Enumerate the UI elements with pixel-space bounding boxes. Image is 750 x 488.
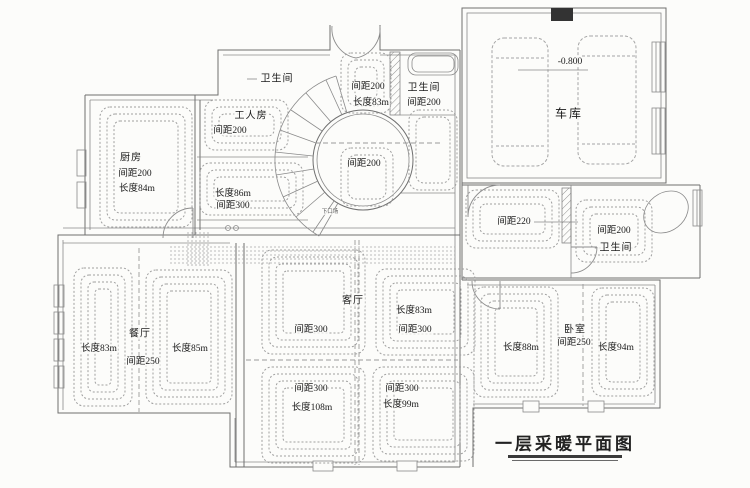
- label-bedroom-spacing: 间距250: [556, 338, 591, 348]
- label-living-br-spacing: 间距300: [384, 384, 419, 394]
- label-bedroom-name: 卧室: [563, 325, 587, 336]
- label-living-br-length: 长度99m: [382, 400, 420, 410]
- floor-plan-page: 厨房 间距200 长度84m 卫生间 工人房 间距200 长度86m 间距300…: [0, 0, 750, 488]
- label-hallway-spacing: 间距300: [215, 201, 250, 211]
- label-stair-note: 下口场: [321, 209, 340, 215]
- label-worker-name: 工人房: [234, 111, 269, 122]
- column-block: [551, 8, 573, 21]
- car-outline: [578, 36, 636, 164]
- cars: [492, 36, 636, 166]
- label-small-bath: 卫生间: [260, 74, 295, 85]
- label-topbath-name: 卫生间: [407, 83, 442, 94]
- label-worker-spacing: 间距200: [212, 126, 247, 136]
- label-bedroom-left-length: 长度88m: [502, 343, 540, 353]
- fixtures: [226, 53, 697, 242]
- label-topbath-spacing: 间距200: [406, 98, 441, 108]
- label-dining-name: 餐厅: [128, 329, 152, 340]
- label-vestibule-length: 长度83m: [352, 98, 390, 108]
- label-kitchen-name: 厨房: [119, 153, 143, 164]
- car-outline: [492, 38, 548, 166]
- title-underline-thick: [508, 455, 622, 458]
- label-hall-spacing: 间距200: [346, 159, 381, 169]
- drawing-title: 一层采暖平面图: [495, 430, 635, 455]
- label-dining-spacing: 间距250: [125, 357, 160, 367]
- label-dining-right-length: 长度85m: [171, 344, 209, 354]
- label-rightbath-spacing: 间距200: [596, 226, 631, 236]
- label-kitchen-length: 长度84m: [118, 184, 156, 194]
- label-garage-elevation: -0.800: [557, 57, 584, 67]
- kitchen-door: [163, 208, 193, 238]
- label-kitchen-spacing: 间距200: [117, 169, 152, 179]
- label-rightbath-name: 卫生间: [599, 243, 634, 254]
- label-bedroom-right-length: 长度94m: [597, 343, 635, 353]
- walls: [58, 8, 700, 467]
- label-living-bl-length: 长度108m: [291, 403, 334, 413]
- label-dining-left-length: 长度83m: [80, 344, 118, 354]
- label-living-tr-spacing: 间距300: [397, 325, 432, 335]
- label-living-name: 客厅: [341, 296, 365, 307]
- label-living-tr-length: 长度83m: [395, 306, 433, 316]
- label-vestibule-spacing: 间距200: [350, 82, 385, 92]
- title-underline-thin: [512, 460, 618, 461]
- label-garage-name: 车库: [554, 107, 584, 120]
- label-hallway-length: 长度86m: [214, 189, 252, 199]
- label-corridor-spacing: 间距220: [496, 217, 531, 227]
- floor-plan-drawing: [0, 0, 750, 488]
- label-living-bl-spacing: 间距300: [293, 384, 328, 394]
- label-living-tl-spacing: 间距300: [293, 325, 328, 335]
